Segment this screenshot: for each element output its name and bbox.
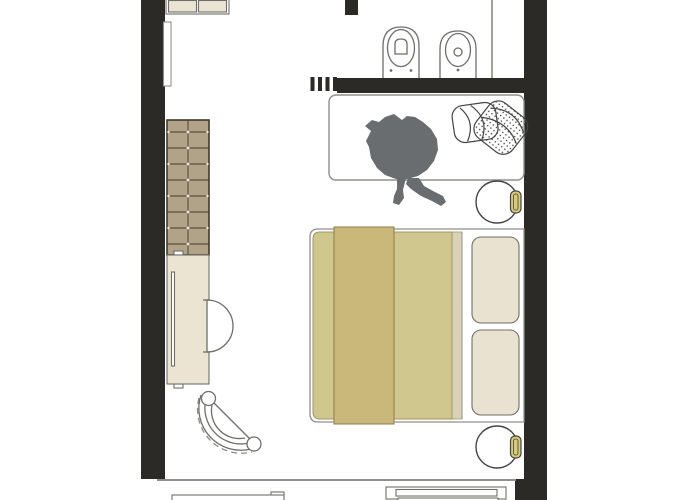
right-wall-bottom [515,479,547,500]
bathroom [383,0,492,78]
nightstand-bottom [476,426,521,468]
wardrobe-cabinet [166,0,229,14]
nightstand-top [476,181,521,223]
left-wall [141,0,165,479]
right-wall [524,0,547,479]
desk-chair [203,300,233,352]
floor-plan-drawing [0,0,700,500]
armchair [198,392,261,454]
floor-plan-canvas [0,0,700,500]
bathroom-wall-stub [345,0,358,15]
balcony-table [172,492,284,500]
balcony-furniture [172,487,506,500]
bed-runner [334,227,394,424]
bed-pillow-bottom [472,330,519,415]
balcony-lounger [386,487,506,500]
desk-cable-slot [172,272,175,366]
wall-panel [164,22,172,86]
bathroom-partition-wall [337,78,547,93]
toilet [383,27,419,78]
door-track-hatch [311,77,338,91]
bidet [440,31,476,78]
double-bed [310,227,524,424]
person-right-leg [406,178,446,206]
person-left-leg [393,178,406,205]
tufted-unit [167,120,209,255]
sheet-fold [452,232,462,419]
bed-pillow-top [472,237,519,323]
